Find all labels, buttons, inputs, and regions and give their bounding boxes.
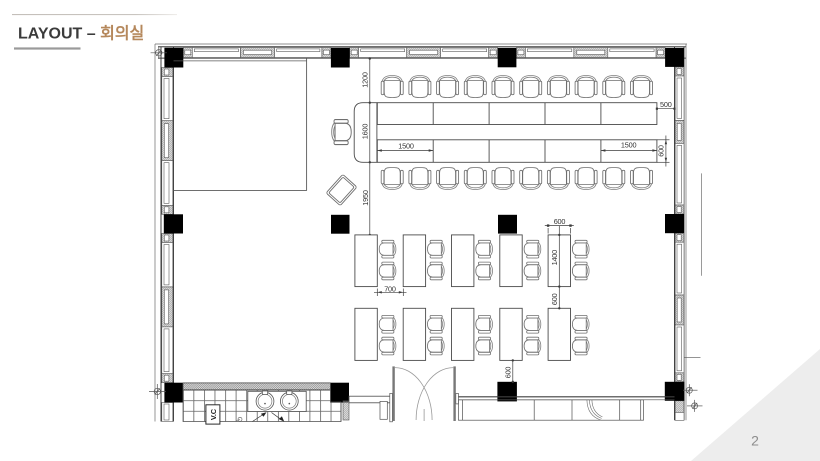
svg-text:700: 700 xyxy=(384,285,396,294)
svg-text:600: 600 xyxy=(550,293,559,305)
svg-text:1500: 1500 xyxy=(398,141,414,150)
svg-text:2: 2 xyxy=(751,432,759,448)
svg-text:600: 600 xyxy=(503,367,512,379)
svg-text:V.C: V.C xyxy=(209,408,218,420)
svg-text:500: 500 xyxy=(660,100,672,109)
svg-text:1950: 1950 xyxy=(361,190,370,206)
svg-text:600: 600 xyxy=(656,145,665,157)
svg-text:1200: 1200 xyxy=(361,72,370,88)
svg-text:LAYOUT – 회의실: LAYOUT – 회의실 xyxy=(18,24,144,43)
svg-text:600: 600 xyxy=(554,217,566,226)
svg-text:1600: 1600 xyxy=(360,124,369,140)
svg-text:1500: 1500 xyxy=(621,141,637,150)
svg-text:1400: 1400 xyxy=(550,250,559,266)
